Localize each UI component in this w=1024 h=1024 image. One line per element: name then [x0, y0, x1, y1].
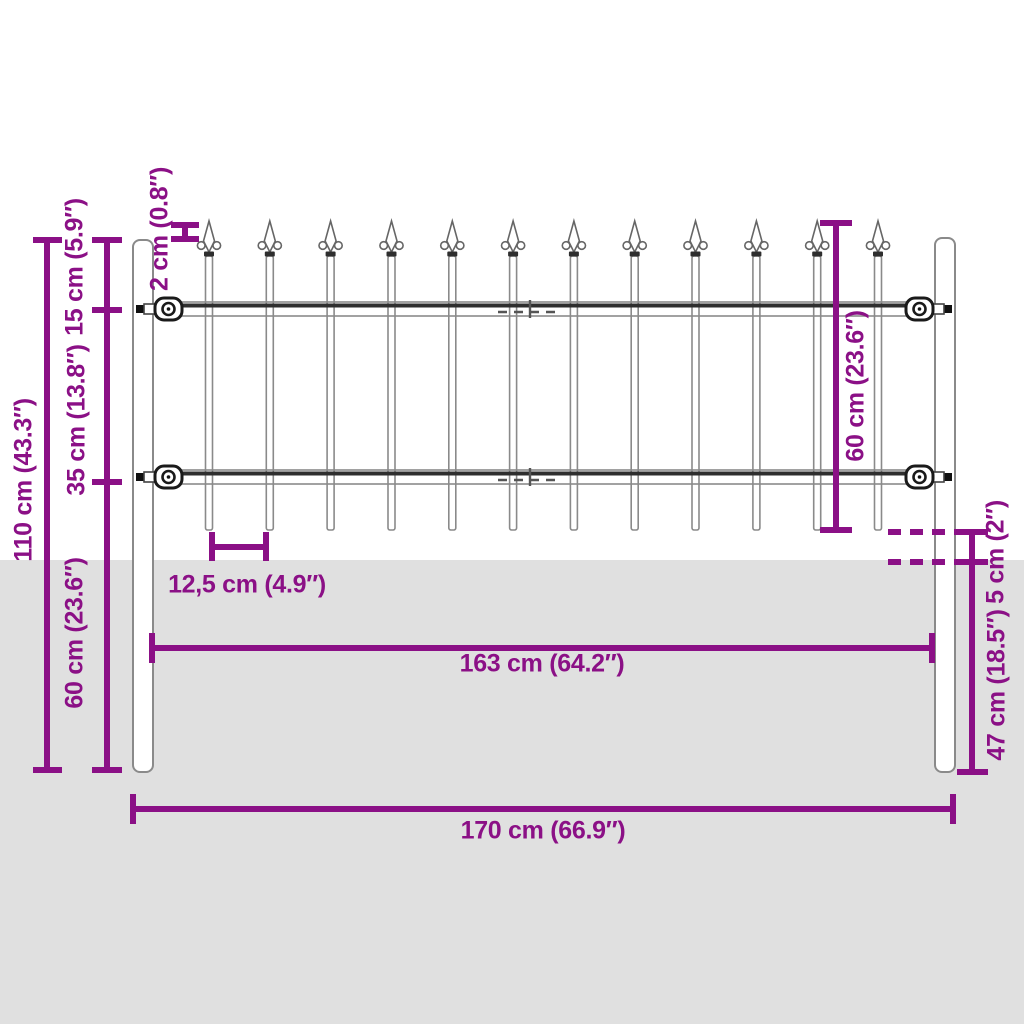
rail-to-rail-label: 35 cm (13.8″)	[63, 344, 92, 495]
overall-width-label: 170 cm (66.9″)	[461, 817, 626, 846]
rail-to-post-bottom-label: 60 cm (23.6″)	[61, 557, 90, 708]
post-top-to-rail-label: 15 cm (5.9″)	[61, 198, 90, 336]
inner-width-label: 163 cm (64.2″)	[460, 650, 625, 679]
fence-dimension-diagram: 110 cm (43.3″) 15 cm (5.9″) 35 cm (13.8″…	[0, 0, 1024, 1024]
overall-height-label: 110 cm (43.3″)	[10, 398, 39, 561]
post-below-ground-label: 47 cm (18.5″)	[983, 609, 1012, 760]
picket-height-label: 60 cm (23.6″)	[842, 310, 871, 461]
right-post	[935, 238, 955, 772]
picket-spacing-label: 12,5 cm (4.9″)	[168, 571, 326, 600]
spear-above-post-label: 2 cm (0.8″)	[146, 167, 175, 291]
picket-above-ground-label: 5 cm (2″)	[982, 500, 1011, 604]
diagram-canvas	[0, 0, 1024, 1024]
left-post	[133, 240, 153, 772]
dim-line-picket-spacing	[212, 532, 266, 561]
dim-line-spear-above-post	[171, 225, 199, 239]
brackets-group	[136, 298, 952, 488]
